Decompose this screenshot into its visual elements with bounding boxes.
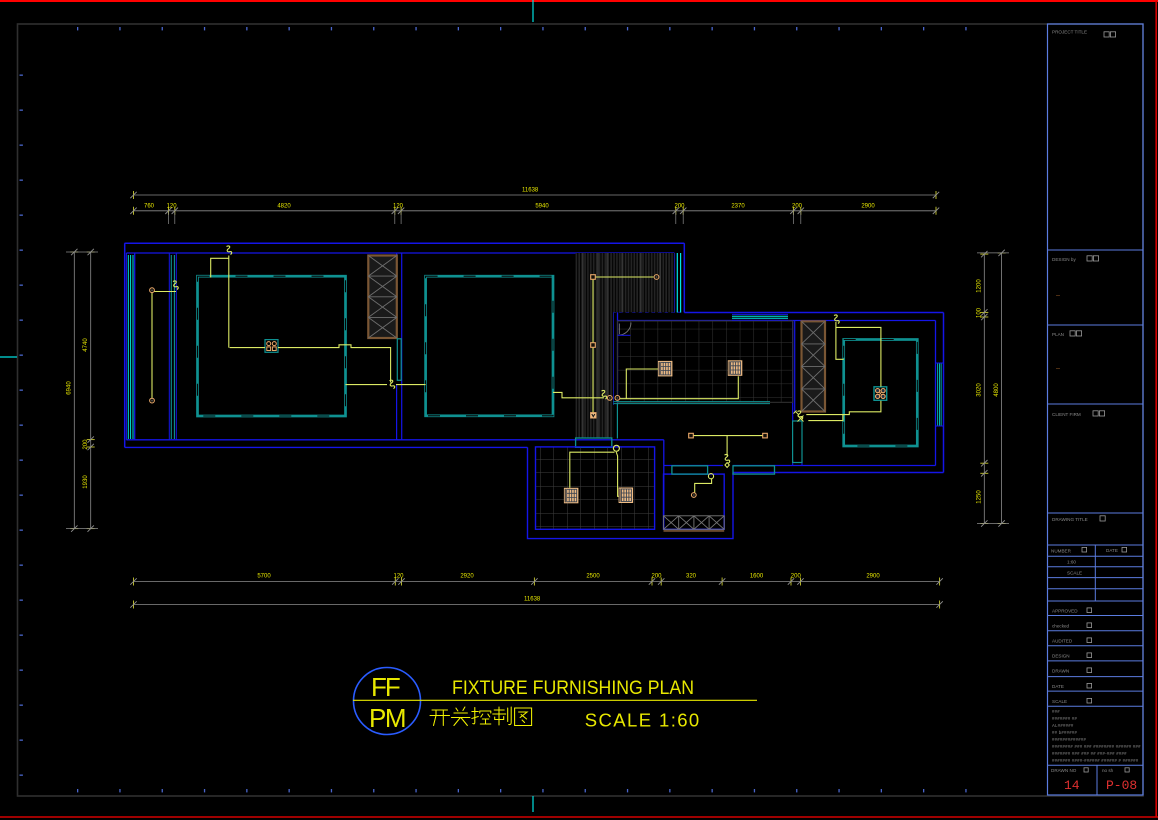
svg-text:checked: checked bbox=[1052, 624, 1070, 629]
svg-text:FIXTURE FURNISHING PLAN: FIXTURE FURNISHING PLAN bbox=[452, 677, 694, 699]
svg-text:120: 120 bbox=[393, 204, 404, 210]
svg-text:1250: 1250 bbox=[977, 490, 983, 504]
svg-text:--: -- bbox=[1056, 366, 1060, 372]
svg-text:SCALE: SCALE bbox=[1067, 571, 1082, 576]
svg-text:1:60: 1:60 bbox=[1067, 560, 1076, 565]
svg-text:SCALE 1:60: SCALE 1:60 bbox=[585, 710, 701, 731]
svg-text:AUDITED: AUDITED bbox=[1052, 639, 1073, 644]
svg-text:## b######: ## b###### bbox=[1052, 730, 1077, 735]
svg-text:2500: 2500 bbox=[586, 574, 600, 580]
svg-text:1930: 1930 bbox=[83, 475, 89, 489]
svg-text:DRAWN NO: DRAWN NO bbox=[1051, 768, 1077, 773]
svg-text:FF: FF bbox=[371, 672, 400, 702]
svg-text:no sh: no sh bbox=[1102, 768, 1114, 773]
svg-text:2370: 2370 bbox=[731, 204, 745, 210]
svg-text:--: -- bbox=[1056, 293, 1060, 299]
svg-text:######## ### ### ######## ###: ######## ### ### ######## ###### ### bbox=[1052, 744, 1141, 749]
svg-text:PLAN: PLAN bbox=[1052, 332, 1064, 337]
svg-text:4800: 4800 bbox=[994, 383, 1000, 397]
svg-text:####### ### ### ## ###-### ##: ####### ### ### ## ###-### #### bbox=[1052, 751, 1127, 756]
svg-text:4820: 4820 bbox=[277, 204, 291, 210]
svg-text:200: 200 bbox=[792, 204, 803, 210]
svg-text:SCALE: SCALE bbox=[1052, 699, 1067, 704]
svg-text:P-08: P-08 bbox=[1106, 778, 1137, 793]
svg-text:5940: 5940 bbox=[535, 204, 549, 210]
svg-text:2900: 2900 bbox=[861, 204, 875, 210]
svg-text:200: 200 bbox=[651, 574, 662, 580]
svg-text:200: 200 bbox=[83, 439, 89, 450]
svg-text:1200: 1200 bbox=[977, 279, 983, 293]
svg-text:PROJECT TITLE: PROJECT TITLE bbox=[1052, 30, 1087, 35]
svg-text:####### ####-###### ###### #: ####### ####-###### ###### # ###### bbox=[1052, 758, 1139, 763]
svg-text:200: 200 bbox=[674, 204, 685, 210]
svg-text:PM: PM bbox=[369, 703, 405, 733]
svg-text:200: 200 bbox=[791, 574, 802, 580]
svg-text:3020: 3020 bbox=[977, 383, 983, 397]
svg-text:AL######: AL###### bbox=[1052, 723, 1074, 728]
svg-text:CLIENT FIRM: CLIENT FIRM bbox=[1052, 412, 1081, 417]
svg-text:DESIGN by: DESIGN by bbox=[1052, 257, 1076, 262]
svg-text:DESIGN: DESIGN bbox=[1052, 654, 1070, 659]
svg-text:4740: 4740 bbox=[83, 338, 89, 352]
svg-text:2920: 2920 bbox=[460, 574, 474, 580]
svg-text:####### ##: ####### ## bbox=[1052, 716, 1077, 721]
svg-text:#############: ############# bbox=[1052, 737, 1087, 742]
svg-text:DRAWING TITLE: DRAWING TITLE bbox=[1052, 517, 1088, 522]
svg-text:1600: 1600 bbox=[750, 574, 764, 580]
svg-text:320: 320 bbox=[686, 574, 697, 580]
svg-text:NUMBER: NUMBER bbox=[1051, 549, 1072, 554]
svg-text:6940: 6940 bbox=[67, 381, 73, 395]
svg-text:2900: 2900 bbox=[866, 574, 880, 580]
svg-text:5700: 5700 bbox=[257, 574, 271, 580]
svg-text:###: ### bbox=[1052, 709, 1060, 714]
svg-text:DRAWN: DRAWN bbox=[1052, 669, 1069, 674]
svg-text:14: 14 bbox=[1064, 778, 1080, 793]
svg-text:DATE: DATE bbox=[1106, 548, 1118, 553]
svg-text:11638: 11638 bbox=[522, 188, 539, 194]
svg-text:120: 120 bbox=[393, 574, 404, 580]
svg-text:760: 760 bbox=[144, 204, 155, 210]
svg-text:100: 100 bbox=[977, 307, 983, 318]
svg-text:11638: 11638 bbox=[524, 597, 541, 603]
svg-text:120: 120 bbox=[167, 204, 178, 210]
svg-text:DATE: DATE bbox=[1052, 684, 1064, 689]
svg-text:APPROVED: APPROVED bbox=[1052, 609, 1078, 614]
